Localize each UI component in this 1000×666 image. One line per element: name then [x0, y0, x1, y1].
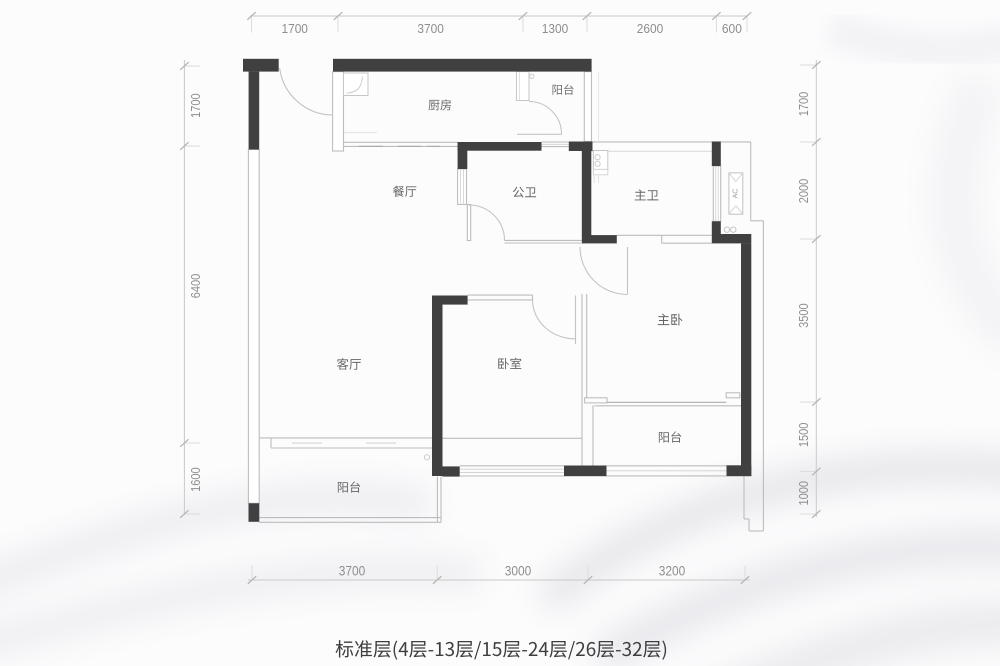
svg-text:1000: 1000: [797, 481, 811, 506]
svg-text:6400: 6400: [189, 274, 203, 299]
svg-text:3500: 3500: [797, 303, 811, 328]
svg-text:1300: 1300: [542, 21, 569, 36]
svg-text:AC: AC: [732, 189, 739, 199]
svg-text:3000: 3000: [505, 564, 532, 579]
svg-text:1700: 1700: [189, 93, 203, 118]
svg-text:1700: 1700: [281, 21, 308, 36]
svg-text:3700: 3700: [417, 21, 444, 36]
svg-text:600: 600: [722, 21, 742, 36]
svg-text:2600: 2600: [637, 21, 664, 36]
svg-text:3700: 3700: [339, 564, 366, 579]
svg-text:1600: 1600: [189, 467, 203, 492]
svg-text:3200: 3200: [659, 564, 686, 579]
svg-text:1500: 1500: [797, 423, 811, 448]
svg-text:1700: 1700: [797, 92, 811, 117]
svg-text:2000: 2000: [797, 179, 811, 204]
